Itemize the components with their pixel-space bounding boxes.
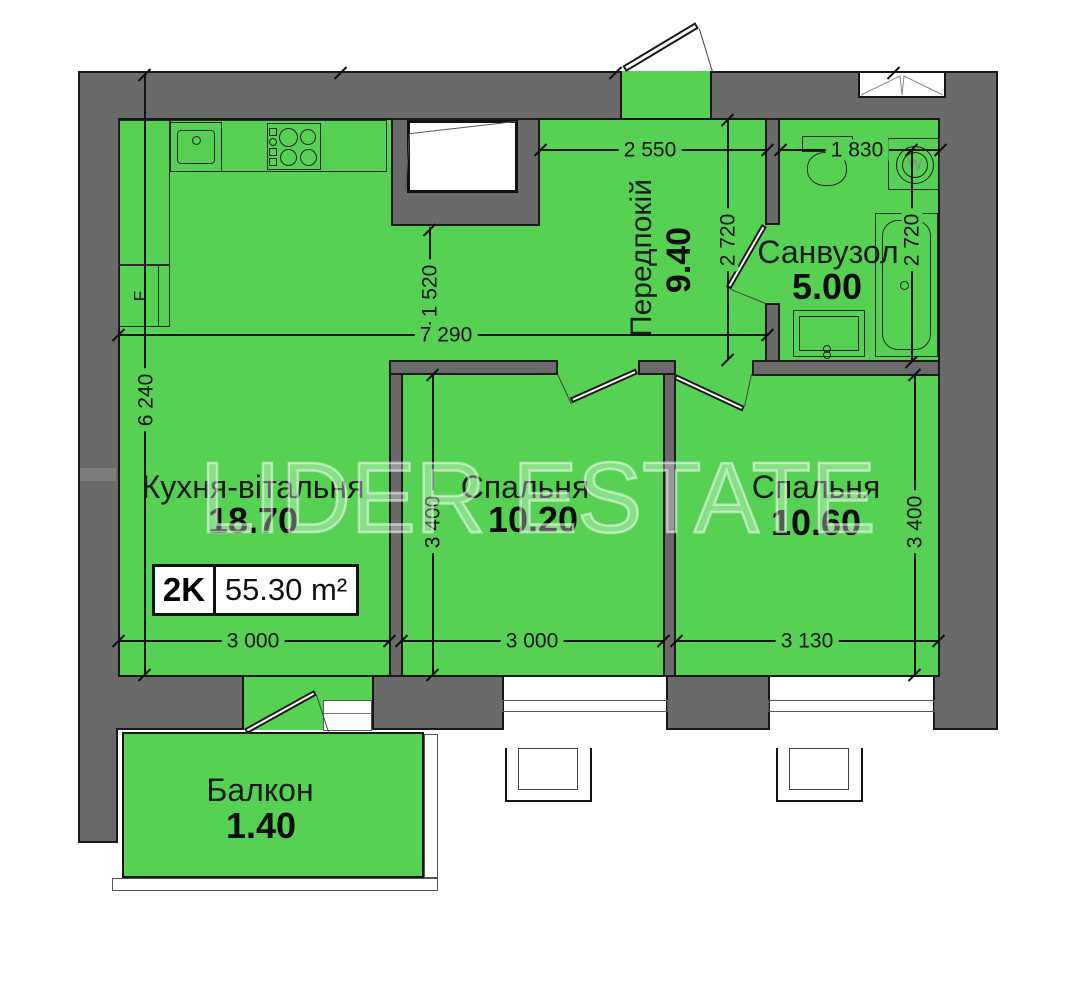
dim-bedroom2-width: 3 130 <box>776 631 839 652</box>
badge-rooms-count: 2K <box>155 567 216 613</box>
dim-kitchen-width: 3 000 <box>222 631 285 652</box>
bathroom-left-wall-upper <box>765 118 780 225</box>
dim-hall-height: 2 720 <box>718 209 739 272</box>
stove-burner-icon <box>280 149 297 166</box>
stove-knob-icon <box>269 128 277 136</box>
dim-total-width: 7 290 <box>415 325 478 346</box>
kitchen-sink-drain-icon <box>192 136 201 145</box>
stove-knob-icon <box>269 138 277 146</box>
balcony-fixed-panel <box>323 700 372 731</box>
bedroom2-window-glazing <box>768 700 935 712</box>
balcony-fixed-panel-line <box>324 713 371 714</box>
bedroom1-window-glazing <box>502 700 668 712</box>
dim-bath-width: 1 830 <box>826 140 889 161</box>
balcony-railing-right <box>424 734 438 878</box>
stove-burner-icon <box>300 129 316 145</box>
left-wall-notch <box>80 468 116 481</box>
bathroom-sink-faucet-icon <box>823 351 831 359</box>
hallway-label: Передпокій <box>627 179 657 337</box>
fridge-inner-line <box>158 266 159 326</box>
apartment-type-badge: 2K 55.30 m² <box>152 564 359 616</box>
stove-knob-icon <box>269 148 277 156</box>
hallway-area: 9.40 <box>662 227 696 293</box>
window-casement-icon <box>860 73 944 96</box>
dim-bath-height: 2 720 <box>902 209 923 272</box>
dim-niche-offset: 1 520 <box>420 260 441 323</box>
fridge-label: F <box>132 291 149 301</box>
dim-bedroom2-height: 3 400 <box>905 491 926 554</box>
floor-plan: F W <box>0 0 1091 999</box>
watermark: LIDER ESTATE <box>200 446 889 554</box>
bathroom-window <box>858 71 946 98</box>
dim-bedroom1-width: 3 000 <box>501 631 564 652</box>
bathroom-label: Санвузол <box>757 236 898 268</box>
badge-total-area: 55.30 m² <box>216 567 356 613</box>
stove-knob-icon <box>269 158 277 166</box>
balcony-label: Балкон <box>206 774 313 806</box>
bedroom1-top-wall <box>389 360 558 375</box>
dim-hall-width: 2 550 <box>619 140 682 161</box>
dim-kitchen-height: 6 240 <box>136 369 157 432</box>
stove-burner-icon <box>300 149 317 166</box>
entrance-door-swing <box>699 29 713 72</box>
stove-burner-icon <box>279 128 298 147</box>
balcony-slab-edge <box>112 878 438 891</box>
bathtub-drain-icon <box>900 281 909 290</box>
entrance-opening <box>620 71 712 118</box>
entrance-door-leaf <box>622 22 698 72</box>
left-wall-extension <box>78 728 118 843</box>
bathroom-area: 5.00 <box>792 269 862 305</box>
balcony-area: 1.40 <box>226 808 296 844</box>
